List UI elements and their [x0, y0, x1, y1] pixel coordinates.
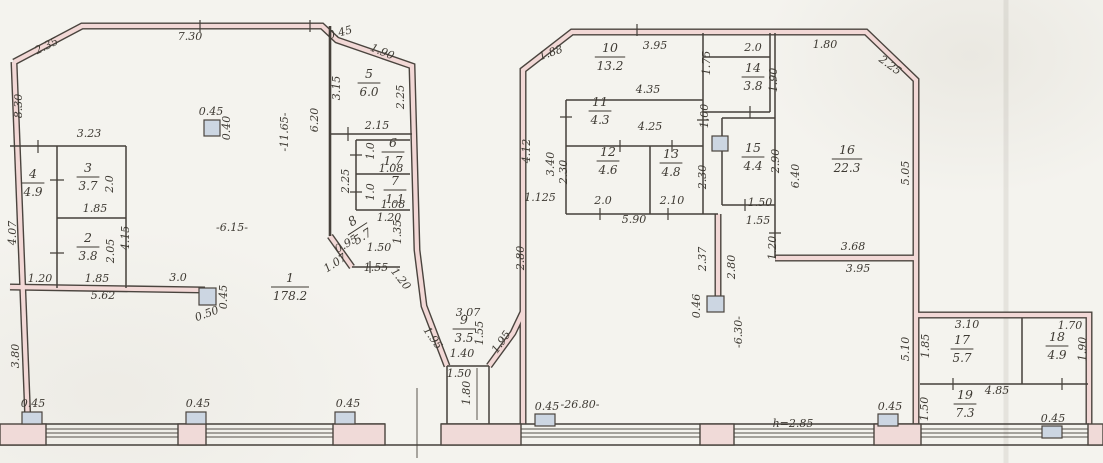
room-area: 3.8	[743, 79, 762, 93]
dim-label: 1.85	[919, 334, 932, 359]
dim-label: 3.15	[330, 76, 343, 101]
room-number: 6	[389, 135, 397, 150]
dim-label: 0.46	[690, 294, 703, 319]
dim-label: 6.40	[789, 164, 802, 189]
room-number: 1	[286, 270, 294, 285]
dim-label: 1.55	[473, 321, 486, 346]
room-area: 22.3	[833, 161, 861, 175]
dim-label: 0.45	[535, 400, 560, 413]
room-label-7: 71.1	[384, 173, 407, 206]
dim-label: 2.37	[696, 247, 709, 273]
room-number: 8	[345, 212, 360, 229]
room-label-18: 184.9	[1046, 329, 1069, 362]
room-label-16: 1622.3	[832, 142, 862, 175]
dim-label: 4.85	[984, 384, 1010, 397]
dim-label: 3.10	[955, 318, 980, 331]
dim-label: 0.45	[336, 397, 361, 410]
room-number: 19	[957, 387, 973, 402]
dim-label: 1.85	[83, 202, 108, 215]
dim-label: 1.50	[748, 196, 773, 209]
dim-label: 3.68	[841, 240, 866, 253]
dim-label: 1.50	[447, 367, 472, 380]
dim-label: -6.30-	[732, 316, 745, 348]
room-number: 14	[745, 60, 761, 75]
dim-label: 1.20	[766, 236, 779, 261]
dim-label: 4.25	[637, 120, 663, 133]
room-number: 9	[460, 312, 468, 327]
dim-label: 4.15	[119, 226, 132, 252]
room-number: 4	[28, 166, 37, 181]
floor-plan-drawing: 2.357.308.300.451.903.152.256.20-11.65-2…	[0, 0, 1103, 463]
room-label-5: 56.0	[358, 66, 381, 99]
dim-label: 1.125	[524, 191, 556, 204]
room-label-14: 143.8	[742, 60, 765, 93]
dim-label: 2.30	[696, 165, 709, 191]
dim-label: 6.20	[308, 108, 321, 133]
dim-label: 2.35	[32, 35, 61, 58]
dim-label: 1.20	[28, 272, 53, 285]
dim-label: -11.65-	[278, 112, 291, 151]
dim-label: 3.95	[846, 262, 871, 275]
dim-label: 2.0	[743, 41, 762, 54]
room-label-19: 197.3	[954, 387, 977, 420]
dim-label: 5.62	[91, 289, 116, 302]
dim-label: -6.15-	[216, 221, 248, 234]
room-label-4: 44.9	[22, 166, 45, 199]
dim-label: 1.88	[537, 42, 564, 63]
dim-label: 4.07	[6, 221, 19, 247]
room-number: 5	[365, 66, 373, 81]
room-number: 13	[663, 146, 679, 161]
dim-label: 1.40	[450, 347, 475, 360]
room-number: 15	[745, 140, 761, 155]
room-number: 12	[600, 144, 616, 159]
dim-label: 1.55	[364, 261, 389, 274]
dim-label: 1.0	[364, 183, 377, 201]
dim-label: 0.45	[217, 285, 230, 310]
dim-label: 0.45	[878, 400, 903, 413]
room-area: 4.4	[742, 159, 762, 173]
room-label-11: 114.3	[589, 94, 612, 127]
room-label-2: 23.8	[77, 230, 100, 263]
room-area: 3.8	[78, 249, 97, 263]
room-label-13: 134.8	[660, 146, 683, 179]
room-number: 3	[84, 160, 92, 175]
room-number: 16	[839, 142, 855, 157]
dim-label: 2.10	[659, 194, 685, 207]
dim-label: 1.90	[767, 68, 780, 93]
room-area: 4.8	[660, 165, 680, 179]
dim-label: 1.20	[388, 265, 413, 292]
dim-label: -26.80-	[561, 398, 600, 411]
dim-label: 4.35	[635, 83, 661, 96]
dim-label: 2.0	[593, 194, 612, 207]
dim-label: 2.25	[876, 52, 904, 78]
dim-label: 1.90	[1076, 337, 1089, 362]
walls-interior	[10, 26, 1088, 424]
dim-label: 3.40	[544, 152, 557, 177]
room-area: 6.0	[359, 85, 378, 99]
dim-label: 2.15	[364, 119, 390, 132]
room-area: 3.5	[454, 331, 473, 345]
door-ticks	[38, 20, 1062, 458]
dim-label: 3.23	[77, 127, 102, 140]
dim-label: 2.0	[103, 175, 116, 194]
room-number: 11	[592, 94, 608, 109]
storefront-band	[0, 424, 1103, 445]
room-area: 4.6	[597, 163, 617, 177]
room-area: 7.3	[955, 406, 974, 420]
dim-label: 0.45	[1041, 412, 1066, 425]
dim-label: 1.75	[700, 51, 713, 76]
dim-label: 1.35	[391, 220, 404, 245]
dim-label: 0.50	[193, 303, 220, 324]
dim-label: 0.40	[220, 116, 233, 141]
room-area: 1.1	[385, 192, 404, 206]
room-area: 13.2	[597, 59, 624, 73]
dimension-labels: 2.357.308.300.451.903.152.256.20-11.65-2…	[6, 23, 1089, 430]
dim-label: 3.80	[9, 344, 22, 369]
room-label-3: 33.7	[77, 160, 100, 193]
dim-label: 2.25	[339, 169, 352, 195]
dim-label: 0.45	[21, 397, 46, 410]
dim-label: 1.80	[460, 381, 473, 406]
dim-label: 4.12	[520, 139, 533, 165]
dim-label: 3.0	[169, 271, 187, 284]
dim-label: 2.05	[104, 239, 117, 265]
dim-label: 2.90	[769, 149, 782, 175]
walls-exterior	[10, 26, 1089, 424]
dim-label: 5.10	[899, 337, 912, 362]
dim-label: 2.30	[557, 160, 570, 186]
room-number: 17	[954, 332, 970, 347]
room-label-17: 175.7	[951, 332, 974, 365]
room-area: 4.9	[1046, 348, 1066, 362]
room-area: 4.3	[589, 113, 609, 127]
room-label-10: 1013.2	[595, 40, 625, 73]
dim-label: 1.0	[364, 142, 377, 160]
room-number: 18	[1049, 329, 1065, 344]
room-number: 7	[391, 173, 399, 188]
room-area: 3.7	[78, 179, 97, 193]
dim-label: 1.55	[746, 214, 771, 227]
dim-label: 8.30	[12, 94, 25, 119]
room-area: 4.9	[22, 185, 42, 199]
dim-label: 2.25	[394, 85, 407, 111]
dim-label: 0.45	[186, 397, 211, 410]
room-label-1: 1178.2	[271, 270, 309, 303]
room-number: 2	[83, 230, 92, 245]
dim-label: 1.00	[698, 104, 711, 129]
room-labels: 1178.223.833.744.956.061.771.185.793.510…	[22, 40, 1069, 420]
room-area: 5.7	[952, 351, 971, 365]
dim-label: 1.50	[367, 241, 392, 254]
dim-label: h=2.85	[773, 417, 814, 430]
dim-label: 2.80	[725, 255, 738, 281]
dim-label: 7.30	[178, 30, 203, 43]
dim-label: 5.90	[622, 213, 647, 226]
dim-label: 1.85	[85, 272, 110, 285]
dim-label: 2.80	[514, 246, 527, 272]
room-area: 1.7	[383, 154, 402, 168]
room-label-15: 154.4	[742, 140, 765, 173]
floor-plan-page: 2.357.308.300.451.903.152.256.20-11.65-2…	[0, 0, 1103, 463]
room-number: 10	[602, 40, 618, 55]
dim-label: 1.50	[918, 397, 931, 422]
dim-label: 1.80	[813, 38, 838, 51]
dim-label: 5.05	[899, 161, 912, 186]
dim-label: 3.95	[643, 39, 668, 52]
room-area: 178.2	[273, 289, 307, 303]
room-label-12: 124.6	[597, 144, 620, 177]
